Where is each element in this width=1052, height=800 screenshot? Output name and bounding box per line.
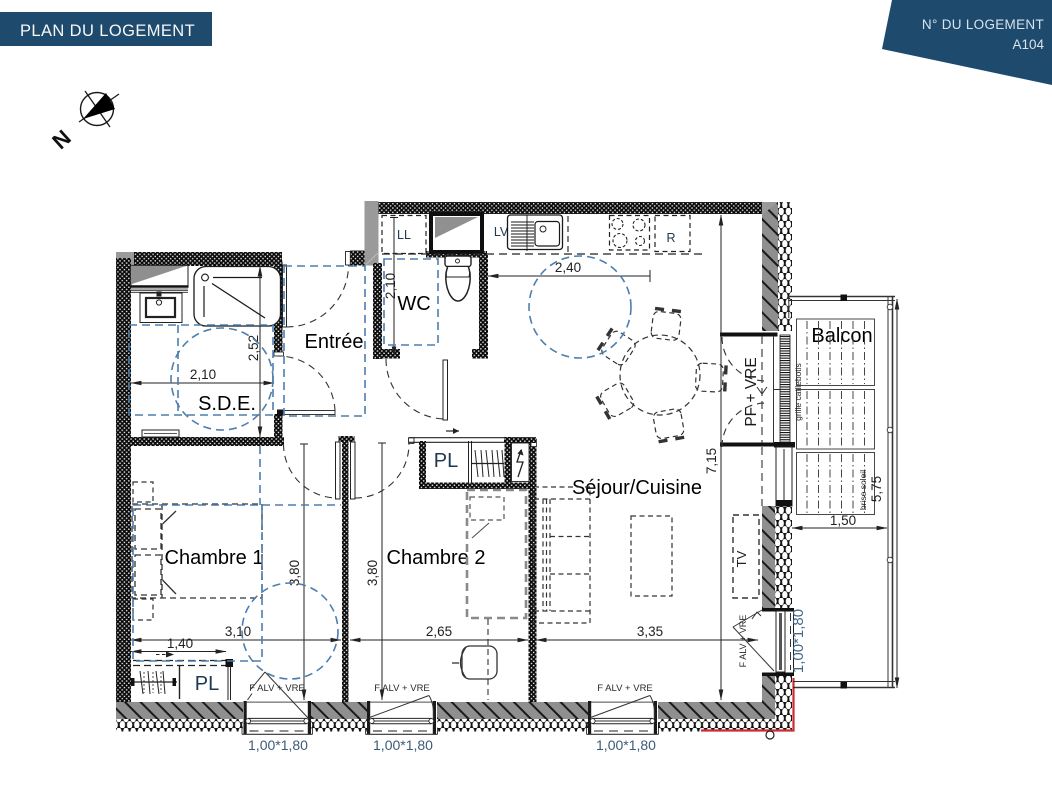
svg-text:Balcon: Balcon (811, 325, 872, 347)
svg-text:LV: LV (494, 225, 509, 239)
svg-text:1,00*1,80: 1,00*1,80 (790, 609, 807, 673)
svg-text:Séjour/Cuisine: Séjour/Cuisine (572, 477, 702, 499)
svg-text:A104: A104 (1012, 37, 1044, 52)
svg-text:Chambre 1: Chambre 1 (165, 547, 264, 569)
svg-text:brise soleil: brise soleil (858, 470, 868, 510)
svg-text:PLAN DU LOGEMENT: PLAN DU LOGEMENT (20, 22, 195, 40)
svg-text:2,10: 2,10 (383, 273, 398, 299)
svg-text:2,40: 2,40 (555, 260, 581, 275)
svg-text:Entrée: Entrée (305, 331, 364, 353)
svg-text:3,80: 3,80 (287, 560, 302, 586)
svg-text:F ALV + VRE: F ALV + VRE (249, 683, 305, 694)
svg-text:PL: PL (195, 673, 219, 695)
svg-text:5,75: 5,75 (869, 476, 884, 502)
svg-text:3,80: 3,80 (365, 560, 380, 586)
svg-text:1,40: 1,40 (167, 636, 193, 651)
svg-text:1,00*1,80: 1,00*1,80 (248, 737, 308, 753)
svg-text:3,10: 3,10 (225, 624, 251, 639)
svg-text:F ALV + VRE: F ALV + VRE (738, 615, 748, 668)
svg-text:TV: TV (734, 550, 749, 567)
svg-text:WC: WC (397, 293, 430, 315)
svg-text:PF + VRE: PF + VRE (743, 357, 760, 426)
svg-text:1,00*1,80: 1,00*1,80 (596, 737, 656, 753)
svg-text:1,00*1,80: 1,00*1,80 (373, 737, 433, 753)
svg-text:grille caillebotis: grille caillebotis (793, 363, 803, 421)
svg-text:7,15: 7,15 (704, 448, 719, 474)
svg-text:F ALV + VRE: F ALV + VRE (374, 683, 430, 694)
svg-text:S.D.E.: S.D.E. (198, 393, 256, 415)
svg-text:2,65: 2,65 (426, 624, 452, 639)
svg-text:F ALV + VRE: F ALV + VRE (597, 683, 653, 694)
svg-text:1,50: 1,50 (830, 513, 856, 528)
svg-text:Chambre 2: Chambre 2 (387, 547, 486, 569)
svg-text:N° DU LOGEMENT: N° DU LOGEMENT (922, 17, 1044, 32)
svg-text:3,35: 3,35 (637, 624, 663, 639)
svg-text:LL: LL (397, 228, 411, 242)
svg-text:R: R (666, 231, 675, 245)
svg-text:PL: PL (434, 450, 458, 472)
svg-text:2,10: 2,10 (190, 367, 216, 382)
